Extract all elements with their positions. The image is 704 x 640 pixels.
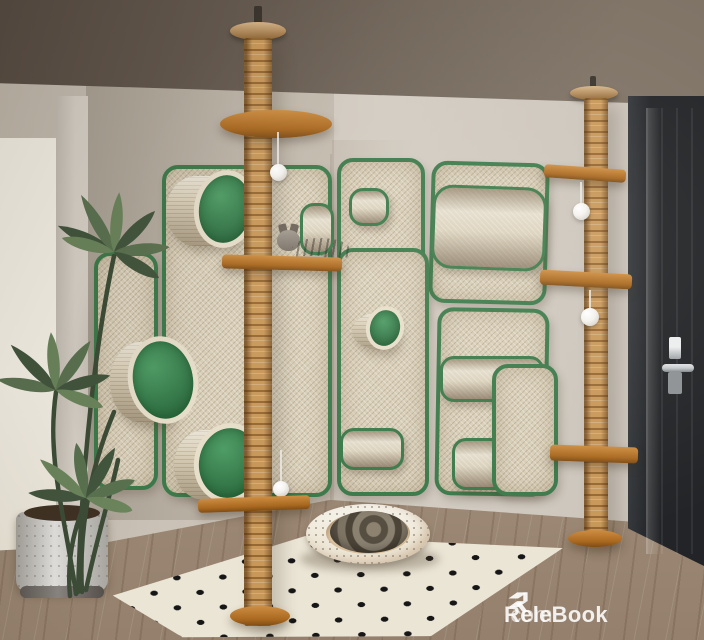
brand-suffix: .com <box>504 602 553 628</box>
wood-platform <box>550 444 639 463</box>
room-scene: ReleBook.com <box>0 0 704 640</box>
entry-door <box>646 108 704 554</box>
toy-string <box>277 132 279 168</box>
sleeping-tabby-cat <box>330 511 408 553</box>
watermark: ReleBook.com <box>504 584 694 620</box>
toy-string <box>280 450 282 484</box>
door-handle-plate <box>668 372 682 394</box>
door-handle <box>662 364 694 372</box>
scratcher-panel <box>492 364 558 496</box>
toy-ball <box>581 308 599 326</box>
toy-string <box>589 290 591 310</box>
scratcher-roll-perch <box>431 184 548 272</box>
pole-floor-base <box>568 530 622 547</box>
door-lock-keypad <box>669 337 681 359</box>
pole-floor-base <box>230 606 290 626</box>
toy-ball <box>573 203 590 220</box>
toy-ball <box>270 164 287 181</box>
round-wood-platform <box>220 110 332 138</box>
scratcher-roll-step <box>349 188 389 226</box>
potted-plant <box>0 160 176 600</box>
toy-ball <box>273 481 289 497</box>
scratcher-roll-step <box>340 428 404 470</box>
